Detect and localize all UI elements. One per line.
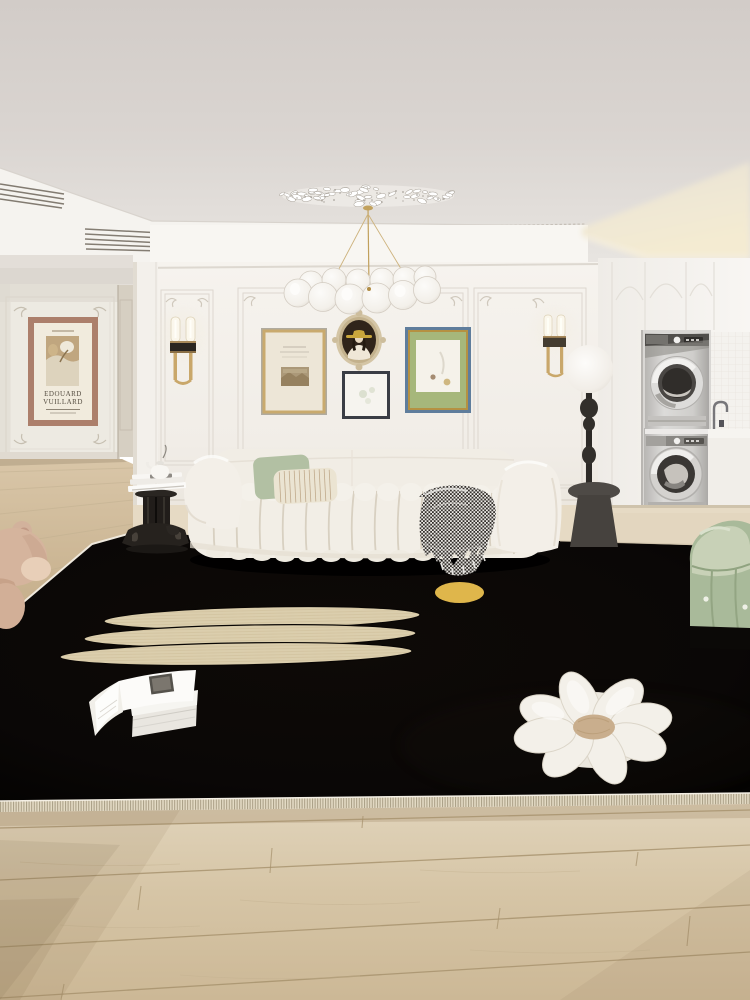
svg-text:VUILLARD: VUILLARD (43, 398, 83, 406)
svg-text:EDOUARD: EDOUARD (44, 390, 82, 398)
